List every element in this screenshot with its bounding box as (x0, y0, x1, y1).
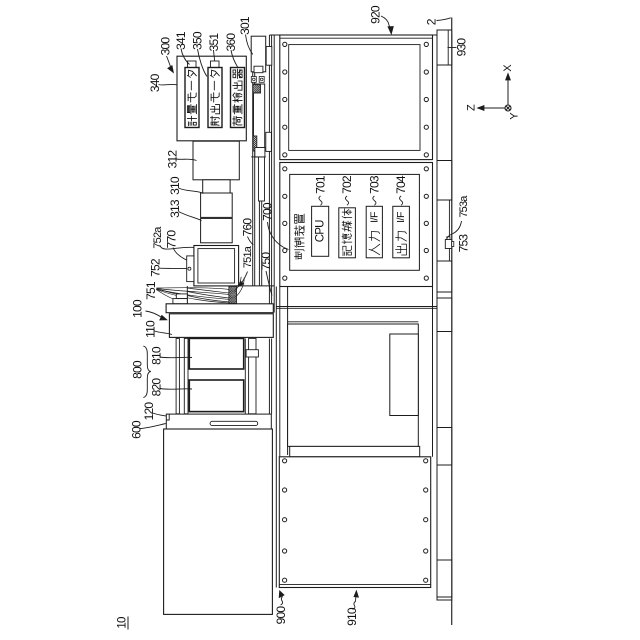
svg-text:750: 750 (259, 252, 273, 271)
svg-text:700: 700 (260, 202, 274, 221)
svg-text:351: 351 (207, 33, 221, 52)
svg-text:770: 770 (164, 230, 178, 249)
svg-text:751: 751 (144, 281, 158, 300)
svg-text:760: 760 (240, 218, 254, 237)
svg-text:752: 752 (148, 258, 162, 277)
svg-text:703: 703 (367, 175, 381, 194)
svg-text:930: 930 (455, 38, 469, 57)
svg-text:350: 350 (191, 31, 205, 50)
svg-text:751a: 751a (242, 245, 254, 268)
svg-text:900: 900 (274, 606, 288, 625)
svg-text:810: 810 (150, 346, 164, 365)
svg-text:110: 110 (144, 320, 158, 338)
svg-text:341: 341 (174, 31, 188, 50)
svg-text:800: 800 (131, 360, 145, 379)
svg-text:10: 10 (117, 617, 129, 629)
svg-text:CPU: CPU (314, 220, 326, 242)
svg-text:704: 704 (394, 175, 408, 194)
svg-text:701: 701 (313, 175, 327, 194)
svg-text:360: 360 (224, 33, 238, 52)
svg-text:I/F: I/F (368, 212, 380, 223)
svg-text:753: 753 (457, 234, 471, 253)
svg-text:310: 310 (168, 176, 182, 195)
svg-text:340: 340 (148, 73, 162, 92)
svg-text:820: 820 (150, 378, 164, 397)
svg-text:600: 600 (129, 420, 143, 439)
svg-text:I/F: I/F (395, 212, 407, 223)
svg-text:910: 910 (345, 607, 359, 626)
svg-text:752a: 752a (152, 226, 164, 249)
svg-text:100: 100 (131, 299, 145, 318)
svg-text:920: 920 (369, 5, 383, 24)
svg-text:313: 313 (168, 199, 182, 218)
svg-text:753a: 753a (458, 195, 470, 218)
svg-text:301: 301 (238, 16, 252, 35)
svg-text:120: 120 (142, 402, 156, 421)
svg-text:300: 300 (158, 37, 172, 56)
svg-text:702: 702 (340, 175, 354, 194)
